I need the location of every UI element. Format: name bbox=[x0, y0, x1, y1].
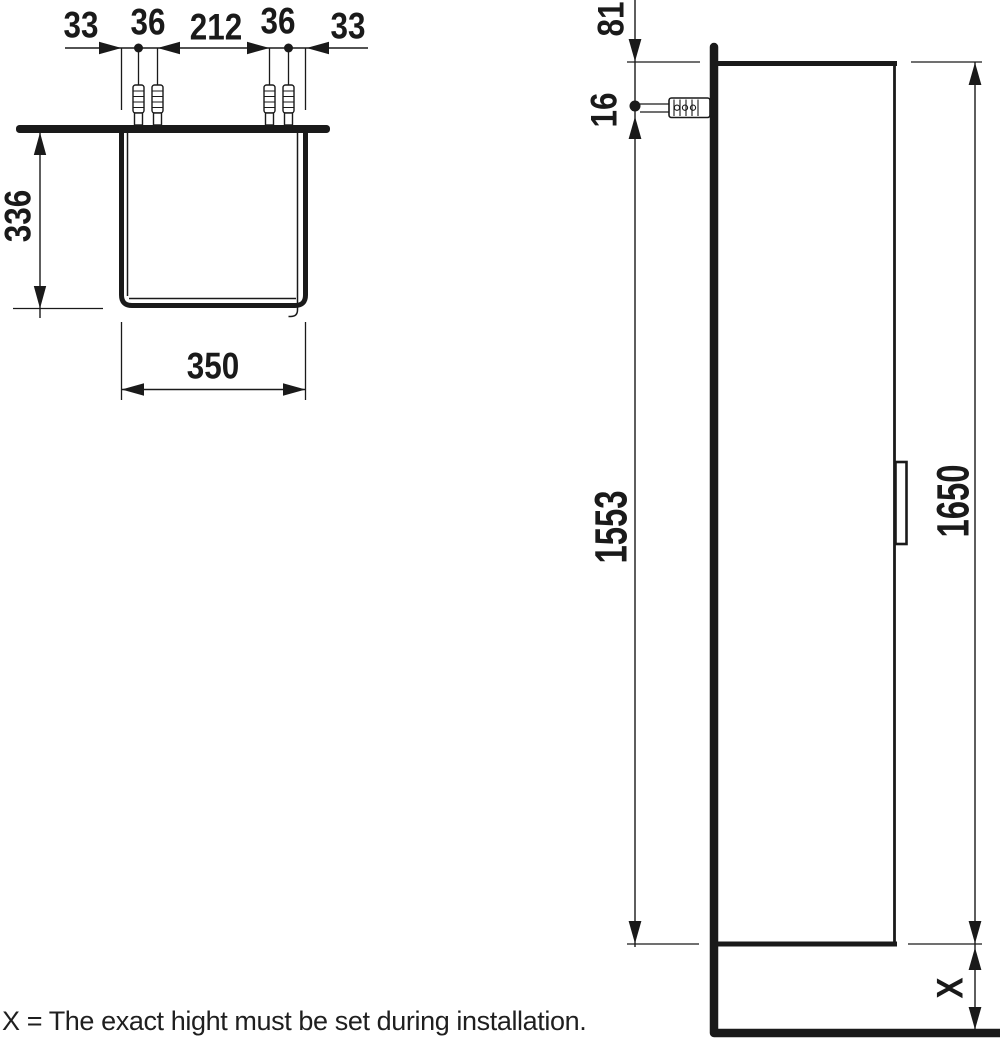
arrowhead bbox=[34, 286, 46, 309]
door-handle bbox=[896, 462, 907, 544]
arrowhead bbox=[969, 1007, 982, 1030]
dim-label-1650: 1650 bbox=[931, 464, 976, 537]
arrowhead bbox=[969, 948, 982, 971]
dim-label-x: X bbox=[932, 978, 969, 999]
dim-label-81: 81 bbox=[593, 2, 630, 37]
dim-label-212: 212 bbox=[190, 9, 242, 46]
dim-label-350: 350 bbox=[187, 348, 239, 385]
dim-label-36-right: 36 bbox=[261, 3, 296, 40]
arrowhead bbox=[629, 117, 642, 140]
cabinet-plan-outline bbox=[122, 131, 306, 317]
mounting-plate bbox=[16, 125, 330, 133]
arrowhead bbox=[969, 63, 982, 86]
top-view-anchor-dimension bbox=[65, 42, 368, 110]
wall-anchor-icon bbox=[152, 85, 163, 125]
arrowhead bbox=[158, 42, 181, 54]
dim-label-1553: 1553 bbox=[589, 490, 634, 563]
arrowhead bbox=[969, 921, 982, 944]
arrowhead bbox=[99, 42, 122, 54]
dim-label-16: 16 bbox=[586, 93, 623, 128]
arrowhead bbox=[307, 42, 330, 54]
dim-label-33-right: 33 bbox=[331, 8, 366, 45]
diagram-canvas: 33 36 212 36 33 336 350 81 16 1553 1650 … bbox=[0, 0, 1000, 1046]
door-edge-detail bbox=[289, 131, 298, 317]
cabinet-outer-wall bbox=[122, 131, 306, 306]
wall-anchors-top-view bbox=[133, 85, 294, 125]
cabinet-side-outline bbox=[718, 62, 907, 946]
left-dimension-chain bbox=[627, 0, 700, 947]
wall-anchor-icon bbox=[133, 85, 144, 125]
arrowhead bbox=[283, 383, 306, 395]
dim-label-36-left: 36 bbox=[131, 4, 166, 41]
anchor-point-dot bbox=[630, 101, 641, 112]
installation-note: X = The exact hight must be set during i… bbox=[2, 1006, 586, 1037]
arrowhead bbox=[629, 39, 642, 62]
dim-label-336: 336 bbox=[0, 190, 37, 242]
wall-anchor-icon bbox=[283, 85, 294, 125]
arrowhead bbox=[122, 383, 145, 395]
anchor-point-dot bbox=[134, 44, 143, 53]
wall-anchor-icon bbox=[264, 85, 275, 125]
technical-drawing bbox=[0, 0, 1000, 1046]
right-dimension-chain bbox=[908, 62, 982, 1031]
arrowhead bbox=[247, 42, 270, 54]
dim-label-33-left: 33 bbox=[64, 7, 99, 44]
arrowhead bbox=[34, 133, 46, 156]
wall-and-floor-line bbox=[714, 47, 1000, 1033]
wall-anchor-side-icon bbox=[640, 98, 710, 118]
anchor-point-dot bbox=[284, 44, 293, 53]
arrowhead bbox=[629, 921, 642, 944]
